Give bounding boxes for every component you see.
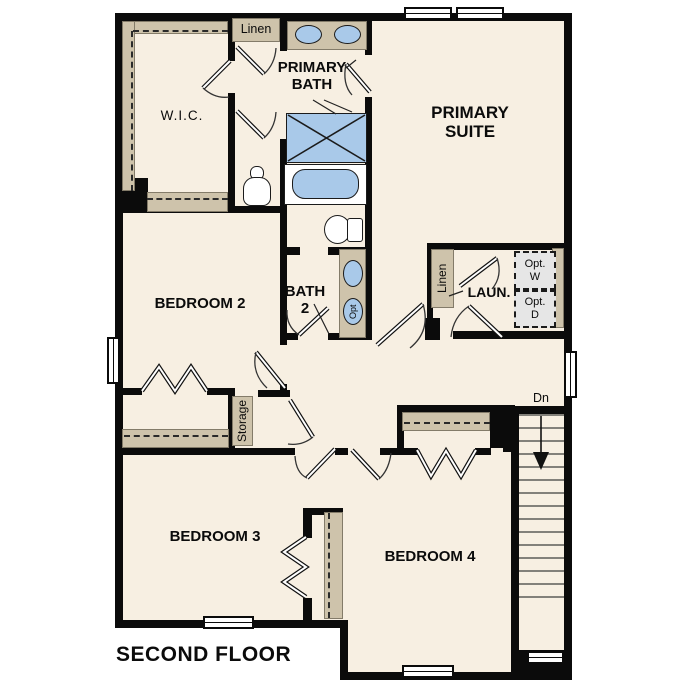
bedroom4-label: BEDROOM 4 (360, 549, 500, 566)
linen-laundry-label: Linen (432, 250, 453, 307)
linen-upper-label: Linen (232, 22, 280, 36)
wic-label: W.I.C. (142, 108, 222, 123)
opt-washer-label-line1: Opt. (525, 258, 546, 271)
wall (335, 448, 348, 455)
wall (303, 508, 312, 538)
wall (348, 672, 572, 680)
floor-plan: Opt. W Opt. D (0, 0, 687, 687)
optional-dryer-box: Opt. D (514, 290, 556, 328)
opt-dryer-label-line1: Opt. (525, 296, 546, 309)
closet-rod (147, 198, 228, 200)
window (203, 616, 254, 629)
bedroom2-closet-shelf (122, 429, 229, 448)
wall (564, 13, 572, 680)
wic-shelf-top (122, 21, 228, 34)
wall (365, 245, 372, 340)
laundry-label: LAUN. (461, 285, 517, 301)
toilet-icon (243, 177, 271, 206)
optional-sink-label: Opt (343, 299, 363, 325)
toilet-tank-icon (347, 218, 363, 242)
bath2-label: BATH 2 (276, 284, 334, 318)
wall (453, 331, 572, 339)
wall (397, 405, 515, 412)
closet-rod (404, 422, 490, 424)
sink-icon (343, 260, 363, 287)
wall (425, 318, 440, 340)
window (404, 7, 452, 20)
storage-label: Storage (232, 396, 253, 446)
bedroom3-closet-shelf (324, 512, 343, 619)
wall (280, 333, 298, 340)
window (527, 651, 564, 664)
page-title: SECOND FLOOR (116, 643, 346, 667)
wall (258, 390, 290, 397)
closet-rod (124, 435, 228, 437)
shower-icon (286, 113, 367, 163)
sink-icon (295, 25, 322, 44)
wall (380, 448, 418, 455)
sink-icon (334, 25, 361, 44)
closet-rod (131, 31, 133, 191)
wic-shelf-bottom (147, 192, 228, 212)
opt-dryer-label-line2: D (531, 309, 539, 322)
opt-washer-label-line2: W (530, 271, 540, 284)
wall (475, 448, 491, 455)
window (402, 665, 454, 678)
bedroom3-label: BEDROOM 3 (140, 529, 290, 546)
wall (122, 388, 142, 395)
stairs-down-label: Dn (525, 391, 557, 405)
window (456, 7, 504, 20)
wall (511, 406, 572, 414)
wall (303, 598, 312, 622)
window (564, 351, 577, 398)
wall (503, 412, 511, 452)
wall (115, 448, 295, 455)
wall (280, 247, 300, 255)
wall (228, 93, 235, 213)
wic-shelf-left (122, 21, 135, 191)
window (107, 337, 120, 384)
wall (280, 21, 287, 51)
primary-bath-label: PRIMARY BATH (252, 60, 372, 94)
bedroom2-label: BEDROOM 2 (130, 296, 270, 313)
closet-rod (328, 513, 330, 618)
closet-rod (133, 30, 228, 32)
wall (511, 412, 519, 680)
optional-washer-box: Opt. W (514, 251, 556, 290)
bathtub-basin-icon (292, 169, 359, 199)
primary-suite-label: PRIMARY SUITE (400, 103, 540, 141)
